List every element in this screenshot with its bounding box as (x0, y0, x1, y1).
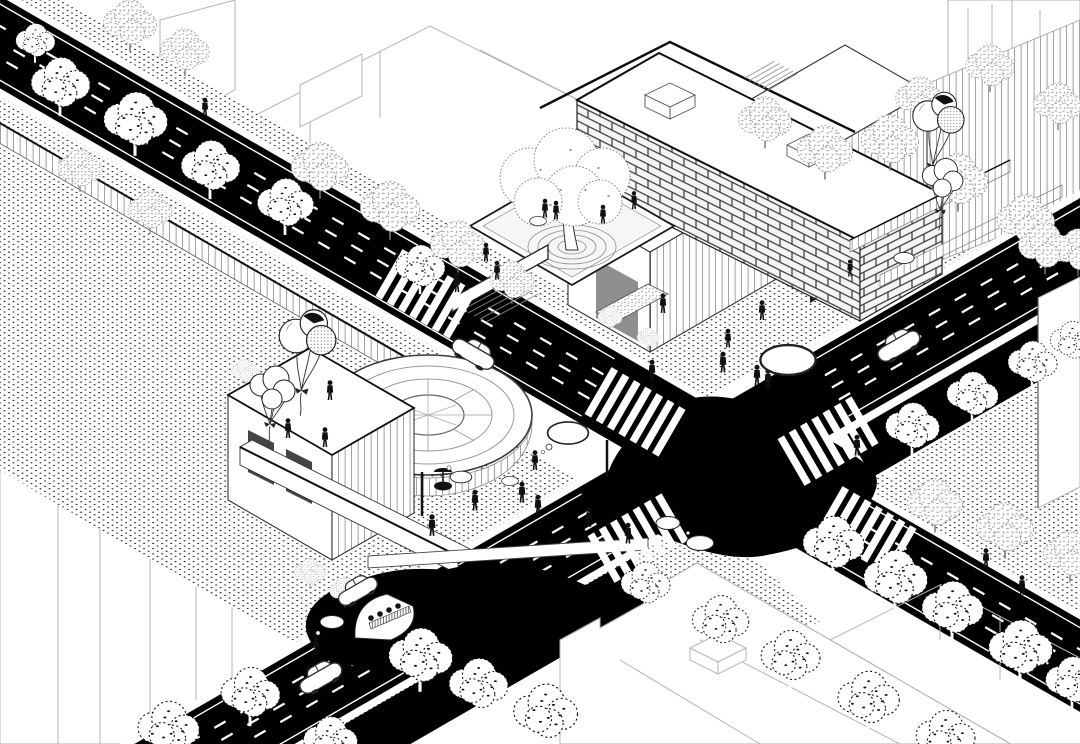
bubble (320, 616, 344, 629)
right-tower (1038, 277, 1080, 508)
dot (541, 450, 545, 454)
bubble (894, 252, 914, 263)
dot (546, 444, 552, 450)
axonometric-illustration (0, 0, 1080, 744)
bubble (760, 345, 815, 375)
bubble (530, 216, 547, 225)
dot (316, 631, 320, 635)
bubble (450, 471, 472, 483)
bubble (548, 422, 589, 444)
bubble (502, 476, 519, 485)
bubble (686, 536, 714, 551)
dot (686, 531, 690, 535)
dot (447, 466, 451, 470)
bubble (656, 517, 680, 530)
